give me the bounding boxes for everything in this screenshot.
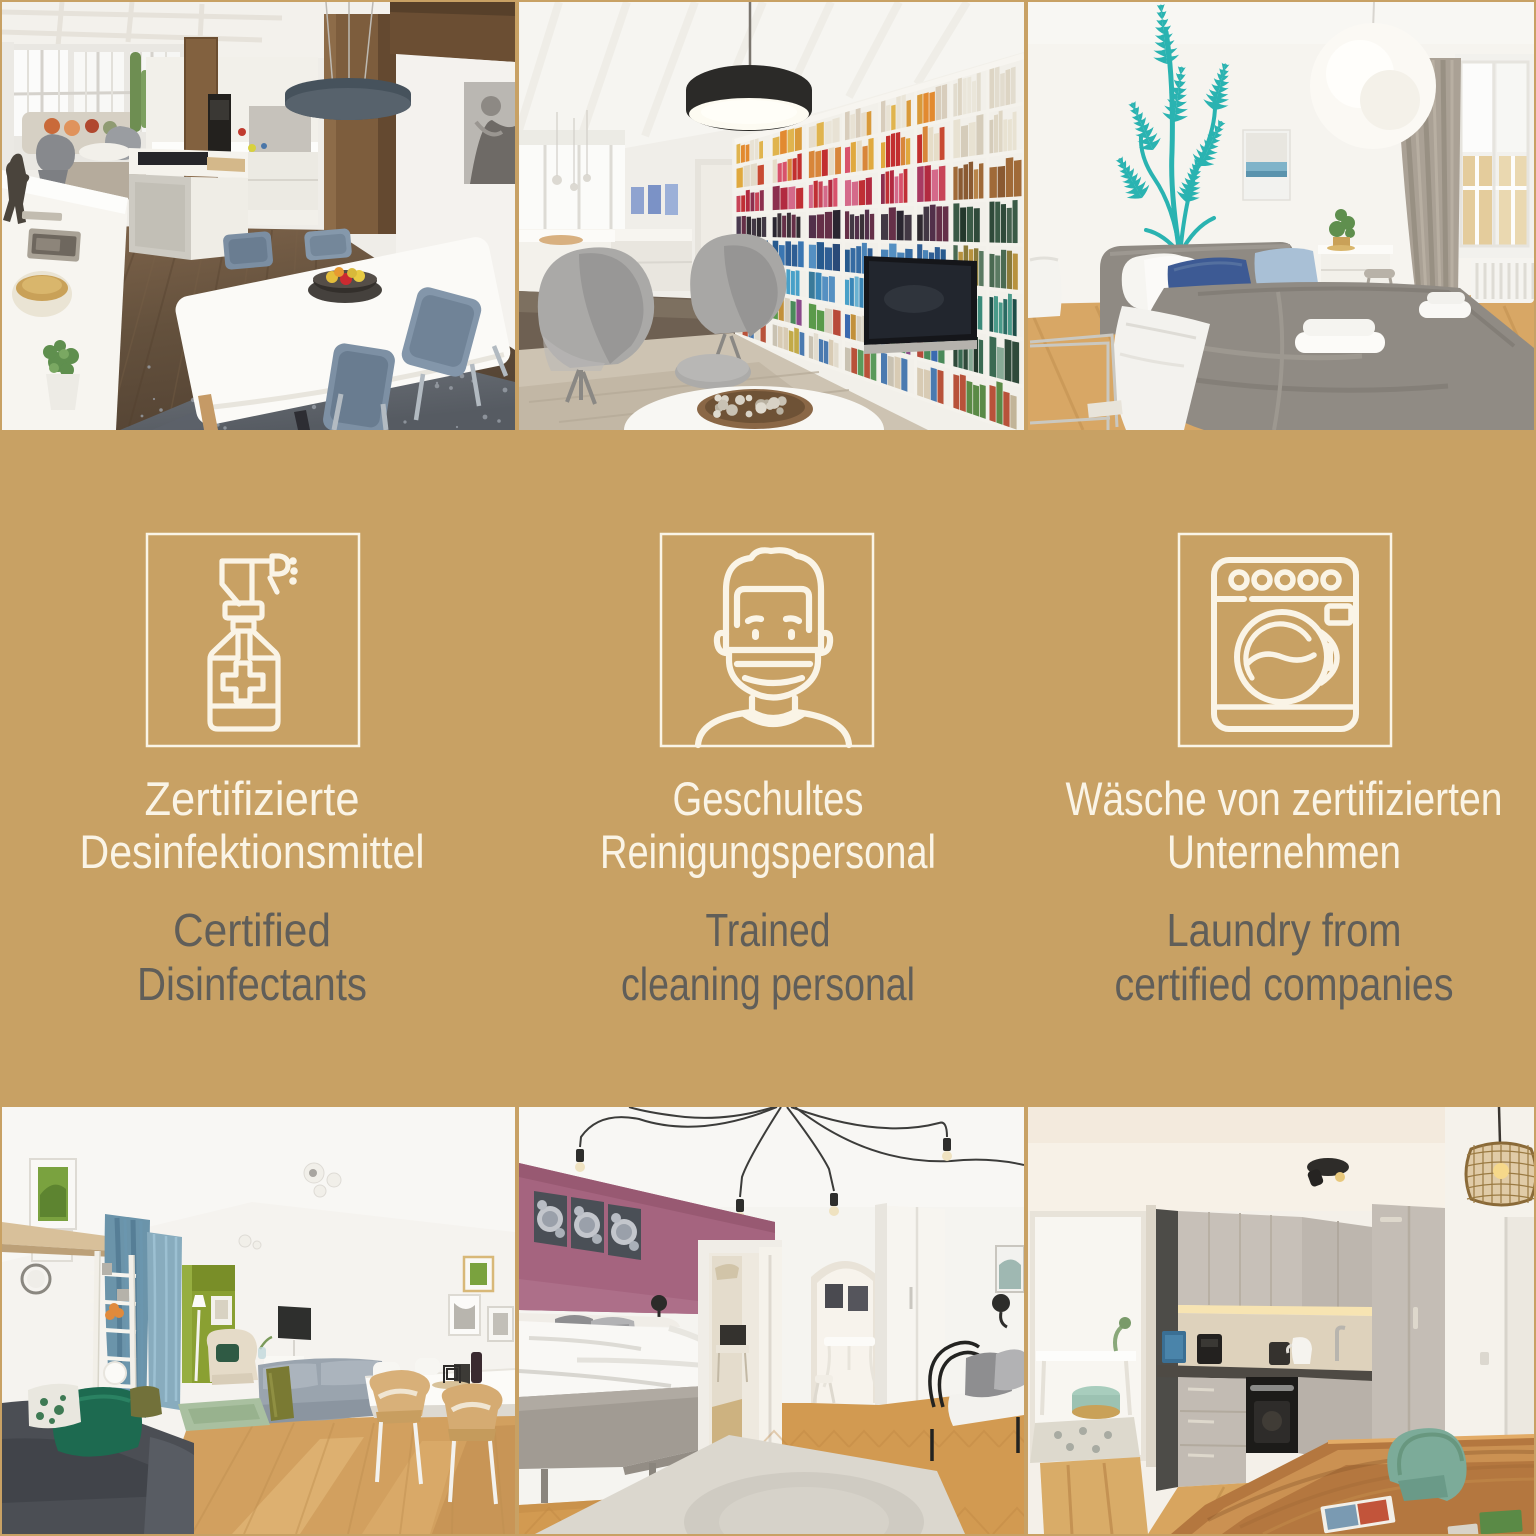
svg-text:cleaning personal: cleaning personal [621, 958, 915, 1010]
svg-text:Wäsche von zertifizierten: Wäsche von zertifizierten [1066, 772, 1503, 825]
svg-text:certified companies: certified companies [1115, 958, 1454, 1010]
svg-text:Disinfectants: Disinfectants [137, 958, 367, 1010]
svg-text:Certified: Certified [173, 904, 331, 956]
svg-text:Laundry from: Laundry from [1167, 904, 1402, 956]
svg-text:Geschultes: Geschultes [673, 772, 864, 825]
svg-text:Unternehmen: Unternehmen [1167, 825, 1401, 878]
svg-text:Reinigungspersonal: Reinigungspersonal [600, 825, 936, 878]
svg-text:Zertifizierte: Zertifizierte [145, 772, 360, 825]
svg-text:Trained: Trained [706, 904, 831, 956]
svg-text:Desinfektionsmittel: Desinfektionsmittel [80, 825, 425, 878]
